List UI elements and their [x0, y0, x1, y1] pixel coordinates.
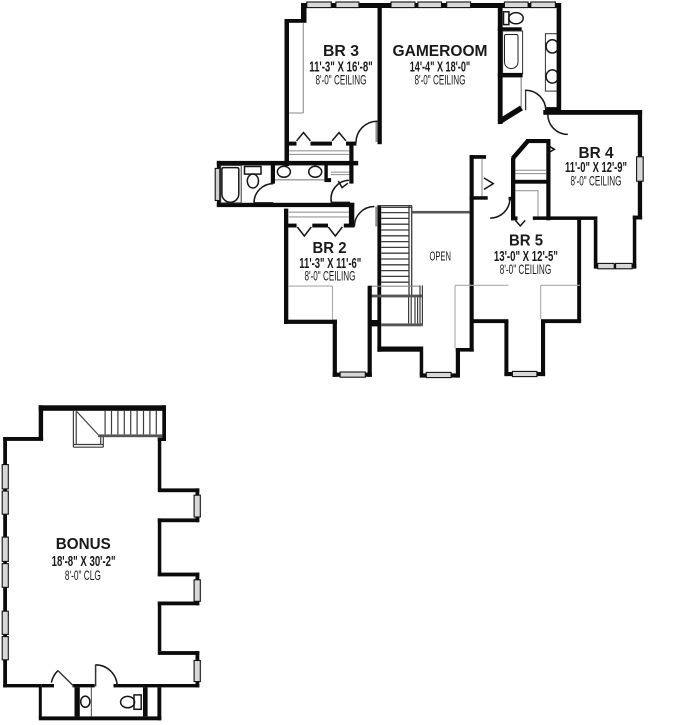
- svg-text:OPEN: OPEN: [429, 250, 451, 264]
- svg-text:8'-0" CEILING: 8'-0" CEILING: [571, 173, 622, 188]
- svg-text:8'-0" CEILING: 8'-0" CEILING: [305, 269, 356, 284]
- svg-text:8'-0" CEILING: 8'-0" CEILING: [316, 73, 367, 88]
- svg-text:8'-0" CLG: 8'-0" CLG: [65, 568, 101, 583]
- svg-text:BR 3: BR 3: [323, 43, 359, 60]
- svg-text:8'-0" CEILING: 8'-0" CEILING: [500, 262, 552, 277]
- svg-text:8'-0" CEILING: 8'-0" CEILING: [415, 73, 466, 88]
- svg-text:BONUS: BONUS: [56, 536, 111, 553]
- svg-text:BR 5: BR 5: [509, 233, 543, 250]
- svg-text:GAMEROOM: GAMEROOM: [393, 43, 488, 60]
